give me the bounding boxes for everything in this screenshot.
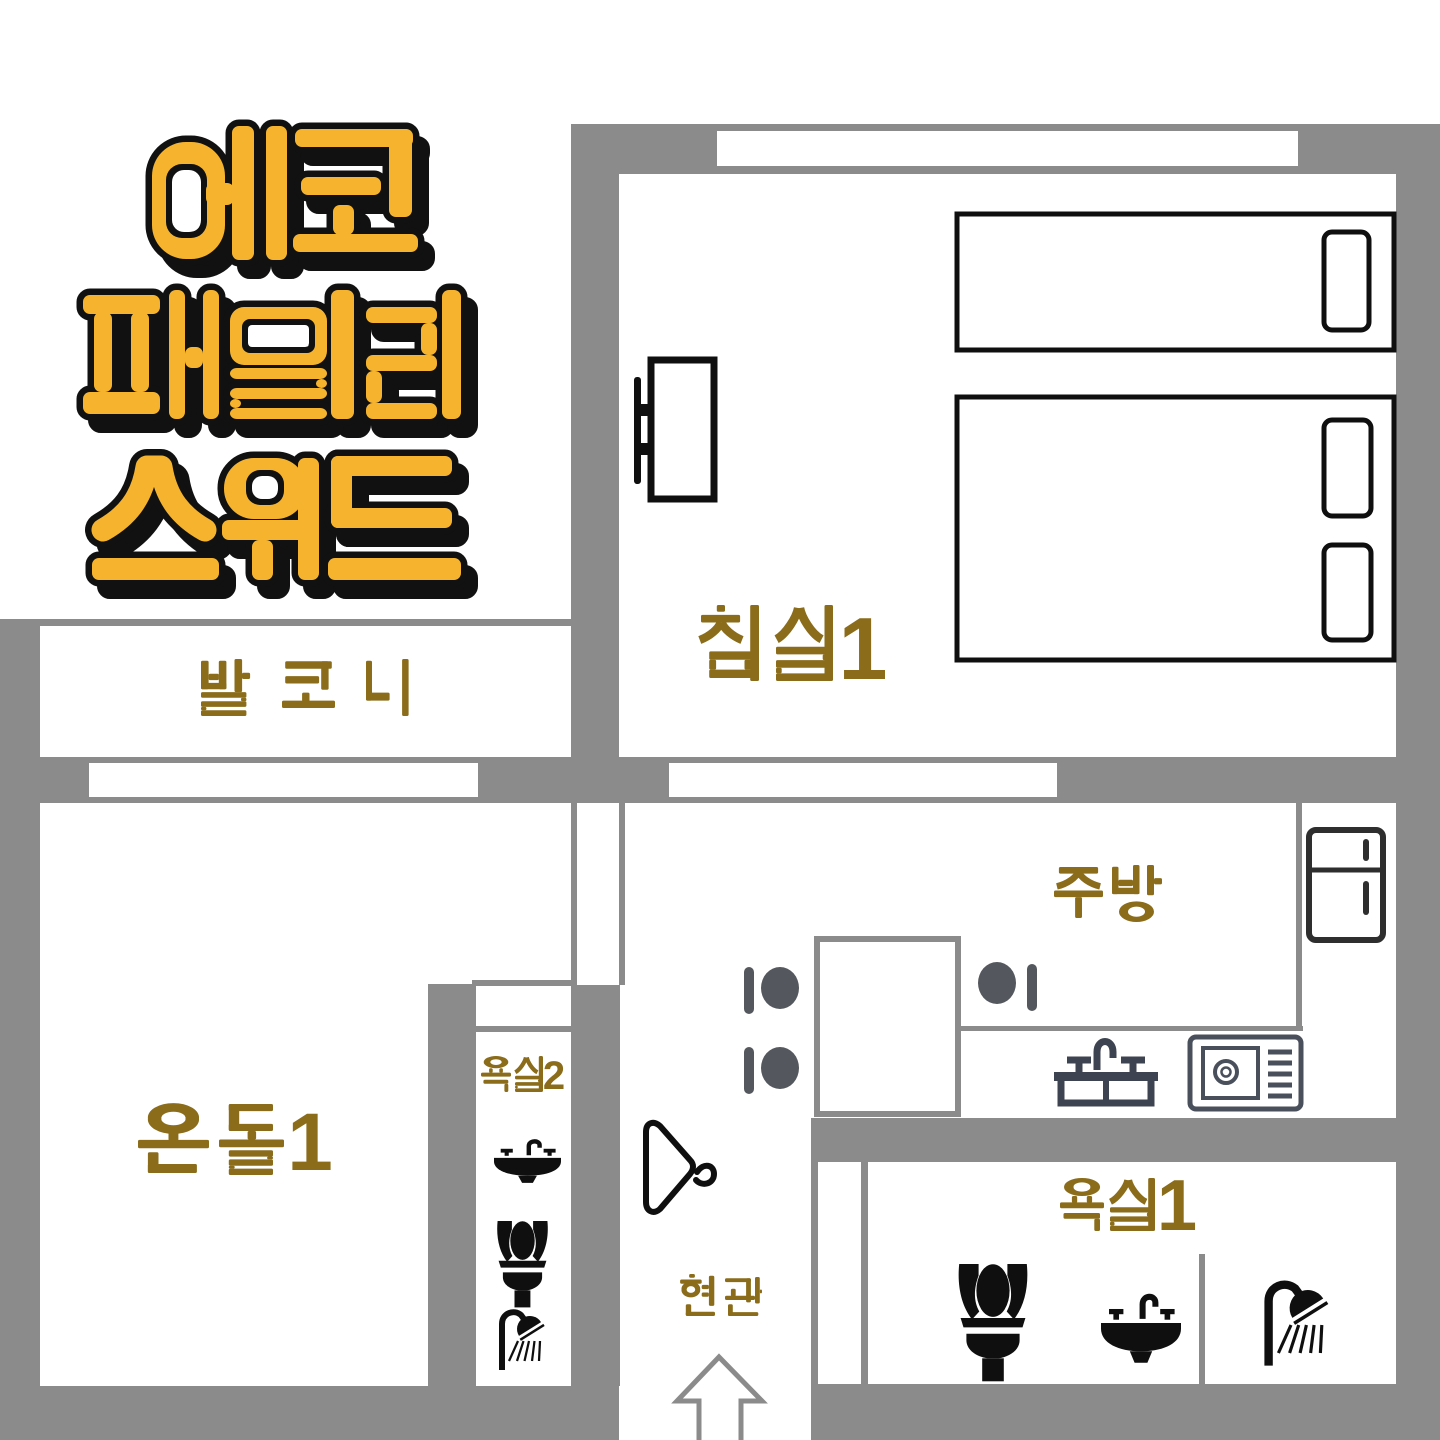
svg-text:1: 1 — [1157, 1166, 1197, 1246]
svg-text:2: 2 — [543, 1054, 565, 1098]
svg-text:1: 1 — [839, 599, 888, 698]
svg-text:1: 1 — [287, 1097, 333, 1188]
